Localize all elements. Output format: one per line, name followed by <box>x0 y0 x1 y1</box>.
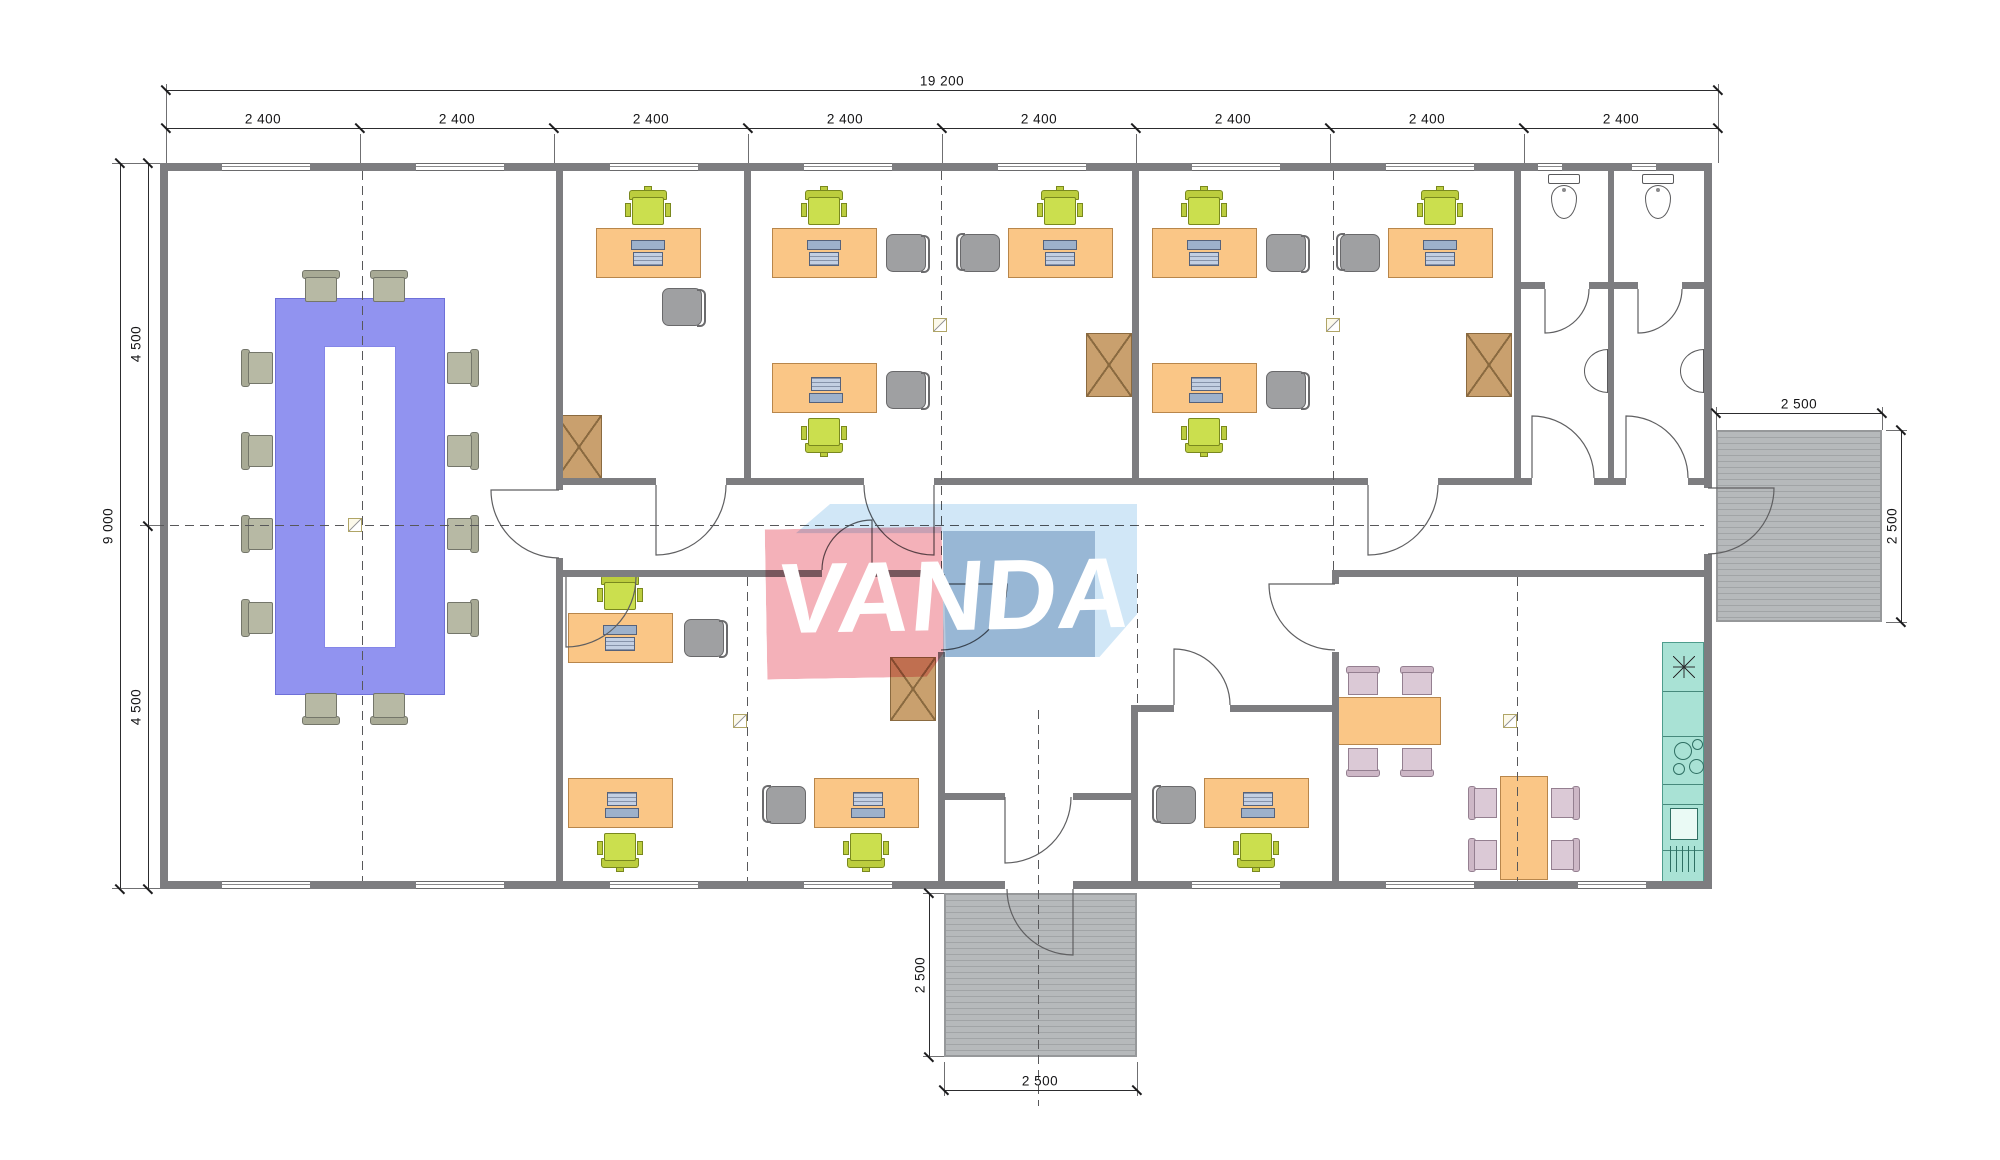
door-swing <box>1708 488 1774 554</box>
dim-line-bottom-porch-width <box>944 1090 1137 1091</box>
floor-plan-canvas: VANDA 19 200 9 000 4 500 4 500 2 500 2 5… <box>0 0 2000 1160</box>
dim-label-right-porch-width: 2 500 <box>1781 397 1817 412</box>
door-swing <box>1269 584 1335 650</box>
axis-marker <box>933 318 947 332</box>
axis-marker <box>348 518 362 532</box>
axis-line-vertical <box>1137 574 1138 705</box>
dim-ext <box>748 134 749 163</box>
dim-line-bottom-porch-height <box>929 893 930 1057</box>
axis-marker <box>733 714 747 728</box>
dim-line-total-width <box>166 90 1718 91</box>
dim-label: 2 400 <box>1603 112 1639 127</box>
dim-label: 2 400 <box>1409 112 1445 127</box>
axis-line-vertical <box>1333 171 1334 570</box>
window <box>610 881 698 889</box>
dim-label: 2 400 <box>245 112 281 127</box>
dim-label-total-height: 9 000 <box>101 508 116 544</box>
dim-ext <box>1330 134 1331 163</box>
window <box>804 881 892 889</box>
dim-line-right-porch-height <box>1901 430 1902 622</box>
dim-label: 2 400 <box>633 112 669 127</box>
dim-label: 2 400 <box>439 112 475 127</box>
dim-ext <box>360 134 361 163</box>
door-swing <box>1174 649 1230 705</box>
axis-line-vertical <box>1038 710 1039 1106</box>
window <box>222 163 310 171</box>
window <box>1538 163 1562 171</box>
window <box>610 163 698 171</box>
dim-ext <box>554 134 555 163</box>
dim-label: 2 400 <box>1215 112 1251 127</box>
dim-label: 2 400 <box>827 112 863 127</box>
dim-ext <box>1136 134 1137 163</box>
window <box>416 881 504 889</box>
dim-line-right-porch-width <box>1716 413 1882 414</box>
door-swing <box>656 485 726 555</box>
door-swing <box>1368 485 1438 555</box>
watermark-logo-text: VANDA <box>772 535 1135 663</box>
door-swing <box>1626 416 1688 478</box>
axis-line-vertical <box>1517 577 1518 881</box>
window <box>804 163 892 171</box>
axis-marker <box>1503 714 1517 728</box>
dim-label-bottom-porch-height: 2 500 <box>913 957 928 993</box>
dim-label-height-seg-2: 4 500 <box>129 689 144 725</box>
axis-line-vertical <box>362 171 363 881</box>
window <box>1632 163 1656 171</box>
door-swing <box>491 490 559 558</box>
dim-label-bottom-porch-width: 2 500 <box>1022 1074 1058 1089</box>
window <box>222 881 310 889</box>
window <box>416 163 504 171</box>
window <box>1192 163 1280 171</box>
door-swing <box>566 577 636 647</box>
axis-marker <box>1326 318 1340 332</box>
dim-label-total-width: 19 200 <box>920 74 964 89</box>
window <box>1578 881 1646 889</box>
dim-label-right-porch-height: 2 500 <box>1885 508 1900 544</box>
window <box>1386 163 1474 171</box>
window <box>1386 881 1474 889</box>
window <box>1192 881 1280 889</box>
window <box>998 163 1086 171</box>
door-swing <box>1638 289 1682 333</box>
dim-ext <box>1524 134 1525 163</box>
door-swing <box>1007 889 1073 955</box>
axis-line-vertical <box>747 577 748 881</box>
door-swing <box>1532 416 1594 478</box>
dim-line-total-height <box>120 163 121 889</box>
door-swing <box>1545 289 1589 333</box>
dim-ext <box>942 134 943 163</box>
dim-label-height-seg-1: 4 500 <box>129 326 144 362</box>
dim-label: 2 400 <box>1021 112 1057 127</box>
